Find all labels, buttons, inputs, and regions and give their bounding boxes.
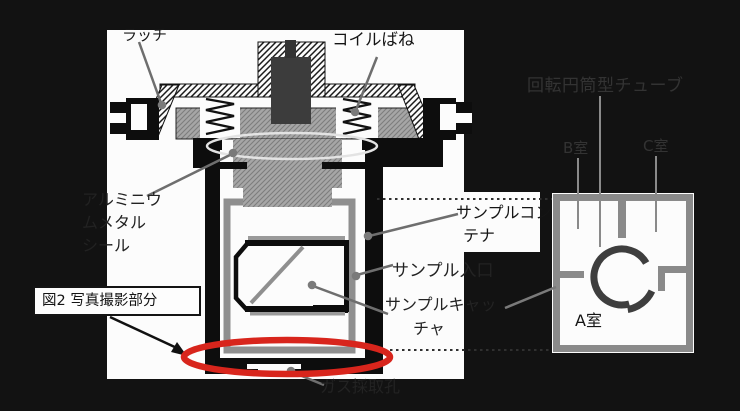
plunger [271,57,311,124]
rotary-tube-top-view [552,193,694,353]
figure-caption-box: 図2 写真撮影部分 [33,286,201,316]
screenshot-root: ラッチ コイルばね 回転円筒型チューブ B室 C室 A室 アルミニウ ムメタル … [0,0,740,411]
label-chamber-c: C室 [643,135,668,156]
label-chamber-a: A室 [575,307,602,331]
mouth-lip-right [322,162,368,169]
latch-left [110,98,159,140]
partition-top [618,201,626,238]
partition-right [658,266,693,273]
label-sample-catcher: サンプルキャッ チャ [385,293,497,341]
label-sample-container-l1: サンプルコン [456,201,551,224]
figure-caption-text: 図2 写真撮影部分 [42,293,157,309]
container-wall-right [365,150,383,374]
plunger-stem [285,40,296,58]
label-chamber-b: B室 [563,137,588,158]
guide-catcher-to-box [505,287,556,308]
label-rotating-tube: 回転円筒型チューブ [527,71,683,96]
partition-left [553,271,584,278]
plug-neck-narrow [243,188,332,207]
container-wall-left [205,150,220,374]
label-latch: ラッチ [122,24,167,45]
label-sample-catcher-l2: チャ [413,317,497,341]
label-aluminum-seal: アルミニウ ムメタル シール [82,188,162,257]
label-sample-container-l2: テナ [463,224,551,247]
label-aluminum-seal-l3: シール [82,234,162,257]
partition-right-stub [658,273,665,291]
label-coil-spring: コイルばね [332,26,415,50]
label-sample-inlet: サンプル入口 [392,256,494,281]
mouth-lip-left [220,162,247,169]
label-aluminum-seal-l2: ムメタル [82,211,162,234]
label-gas-sampling-hole: ガス採取孔 [320,373,400,397]
label-sample-catcher-l1: サンプルキャッ [385,293,497,317]
label-sample-container: サンプルコン テナ [456,201,551,247]
label-aluminum-seal-l1: アルミニウ [82,188,162,211]
latch-right [423,98,472,140]
